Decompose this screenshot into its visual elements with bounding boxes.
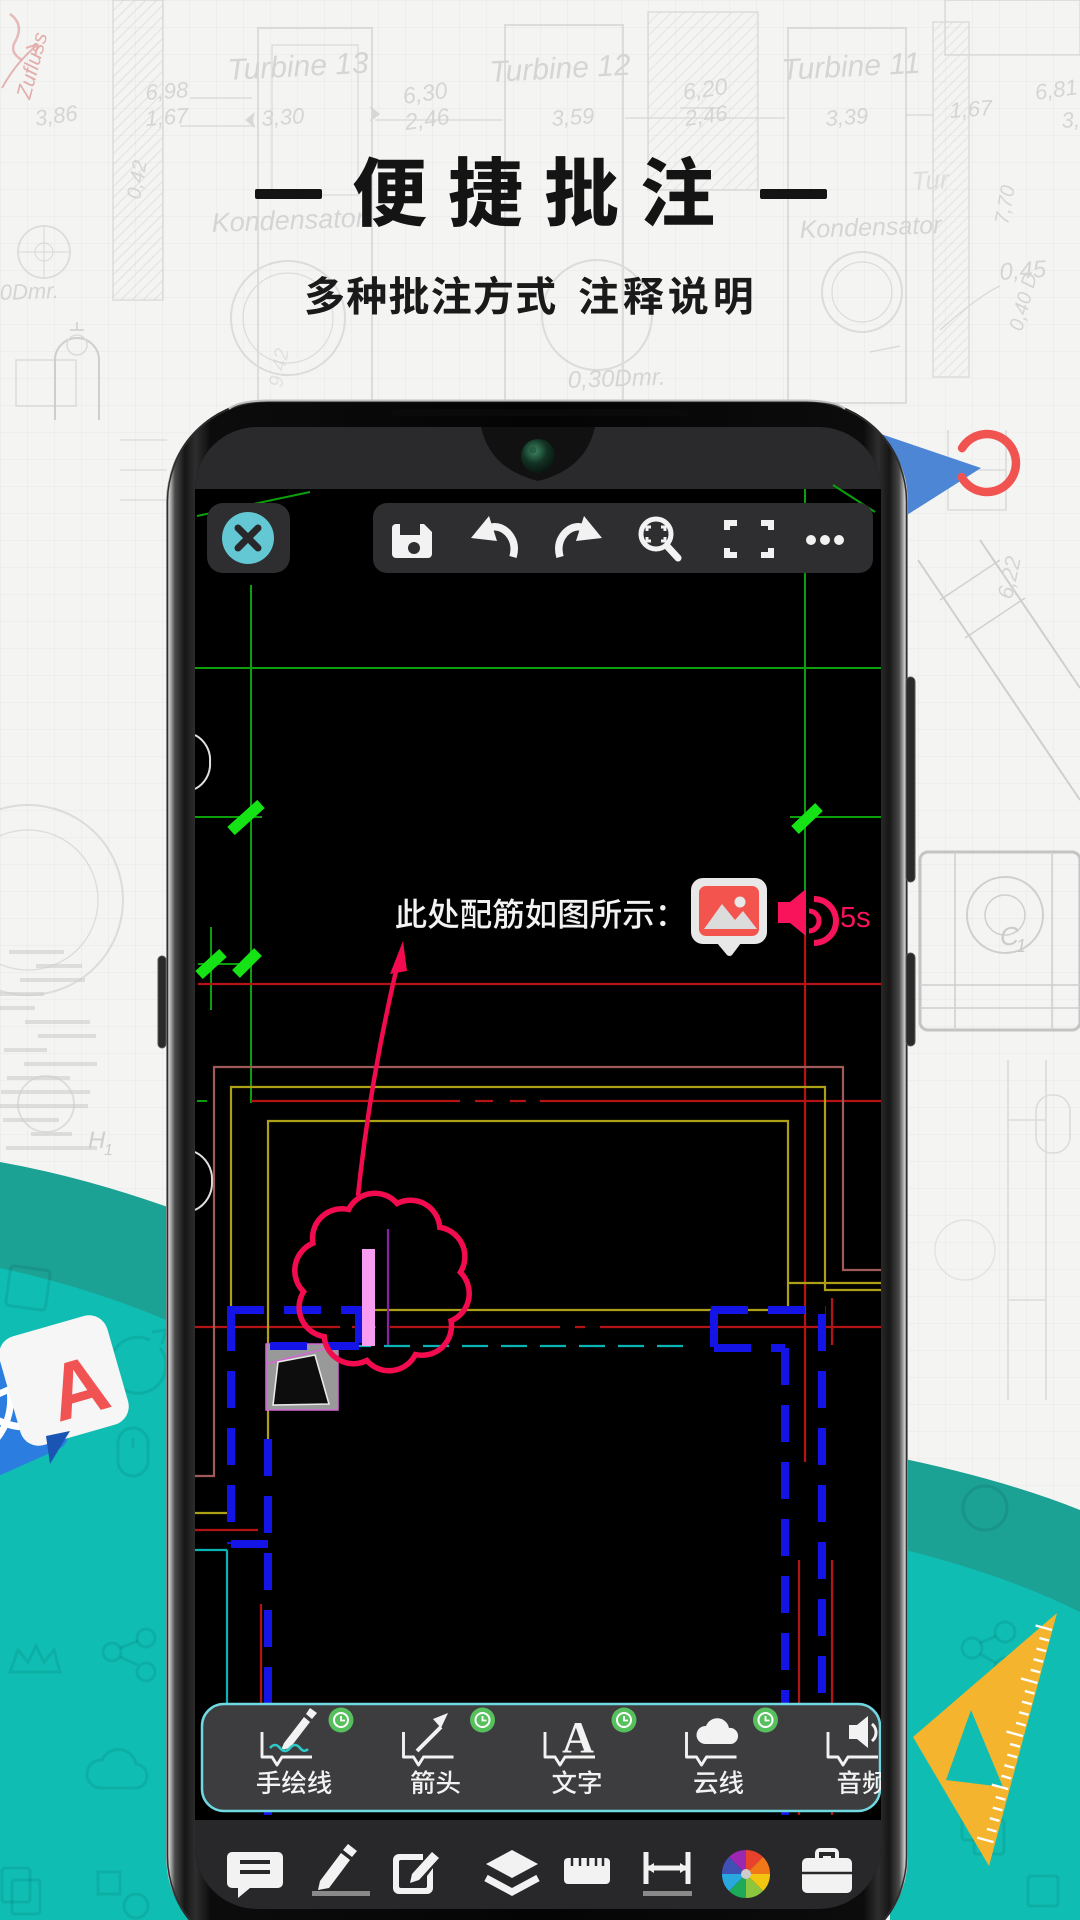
- svg-text:1: 1: [104, 1142, 113, 1159]
- svg-text:3,30: 3,30: [261, 103, 306, 131]
- svg-text:Kondensator: Kondensator: [211, 203, 366, 238]
- svg-text:0,30Dmr.: 0,30Dmr.: [567, 364, 666, 394]
- svg-text:0,45: 0,45: [999, 256, 1048, 286]
- svg-text:1: 1: [1016, 936, 1026, 956]
- svg-text:6,98: 6,98: [145, 77, 190, 105]
- svg-text:Kondensator: Kondensator: [799, 211, 943, 244]
- svg-text:3,59: 3,59: [551, 103, 595, 131]
- svg-text:Tur: Tur: [911, 164, 951, 196]
- svg-text:3,39: 3,39: [825, 103, 869, 131]
- svg-text:1,67: 1,67: [145, 103, 190, 131]
- svg-text:1,67: 1,67: [949, 95, 994, 123]
- svg-text:0Dmr.: 0Dmr.: [0, 278, 59, 305]
- svg-text:3,4: 3,4: [1061, 106, 1080, 133]
- svg-text:A: A: [562, 1713, 594, 1762]
- svg-text:5s: 5s: [840, 902, 871, 934]
